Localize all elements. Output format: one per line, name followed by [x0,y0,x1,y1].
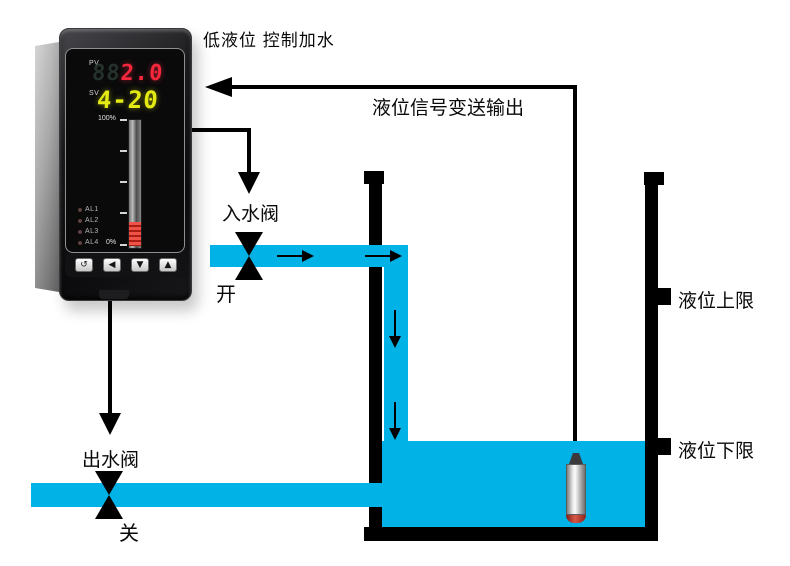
bargraph-scale-bottom: 0% [106,239,116,246]
flow-arrow-down-icon [389,428,401,440]
bargraph-level-fill [129,222,141,246]
inlet-control-line-horizontal [184,128,251,132]
lower-limit-label: 液位下限 [678,436,754,463]
sensor-cable-gland [569,453,583,464]
alarm-label: AL4 [85,239,99,246]
sensor-body [566,464,586,515]
level-control-diagram: 低液位 控制加水 液位信号变送输出 入水阀 开 出水阀 关 液位上限 液位下限 [0,0,790,566]
flow-arrow-right-icon [302,250,314,262]
bargraph-track [128,119,142,249]
bargraph-tick [120,212,127,214]
pv-ghost-digits: 88 [91,62,121,86]
tank-wall-right [645,172,658,540]
outlet-valve-icon [95,471,123,495]
alarm-label: AL1 [85,206,99,213]
bargraph-tick [120,244,127,246]
upper-limit-label: 液位上限 [678,286,754,313]
outlet-pipe [31,483,382,507]
alarm-led [78,219,82,223]
inlet-valve-icon [235,256,263,280]
diagram-title: 低液位 控制加水 [203,26,335,51]
inlet-valve-icon [235,232,263,256]
alarm-led [78,230,82,234]
flow-arrow-right-icon [390,250,402,262]
signal-line-horizontal [228,85,577,89]
alarm-row: AL3 [78,227,99,236]
outlet-control-arrowhead-icon [99,413,121,435]
shift-key-button[interactable]: ◀ [103,258,121,272]
flow-arrow-right-icon [365,255,391,257]
controller-keypad: ↺ ◀ ▼ ▲ [65,253,187,277]
alarm-row: AL2 [78,216,99,225]
tank-water [382,441,645,527]
tank-wall-right-cap [644,172,664,185]
outlet-valve-label: 出水阀 [82,445,139,472]
controller-display: PV 882.0 SV 4-20 100% 0% AL1 [65,48,185,253]
loop-set-key-button[interactable]: ↺ [75,258,93,272]
inlet-valve-state: 开 [216,278,236,307]
flow-arrow-down-icon [394,310,396,338]
signal-output-label: 液位信号变送输出 [372,93,524,120]
level-controller: PV 882.0 SV 4-20 100% 0% AL1 [35,28,190,299]
alarm-row: AL1 [78,205,99,214]
bargraph-tick [120,119,127,121]
inlet-valve-label: 入水阀 [222,199,279,226]
flow-arrow-right-icon [277,255,303,257]
signal-line-vertical [573,85,577,457]
inlet-control-line-vertical [247,128,251,174]
bargraph-scale-top: 100% [98,115,116,122]
inlet-control-arrowhead-icon [238,172,260,194]
alarm-led [78,208,82,212]
alarm-label: AL3 [85,228,99,235]
outlet-control-line-vertical [108,296,112,414]
controller-bottom-tab [99,290,129,299]
flow-arrow-down-icon [389,336,401,348]
flow-arrow-down-icon [394,402,396,430]
down-key-button[interactable]: ▼ [131,258,149,272]
sv-value: 4-20 [96,87,160,113]
bargraph-tick [120,150,127,152]
sensor-tip [566,515,586,523]
bargraph-tick [120,181,127,183]
alarm-led [78,241,82,245]
up-key-button[interactable]: ▲ [159,258,177,272]
lower-limit-marker [657,438,671,455]
outlet-valve-icon [95,495,123,519]
upper-limit-marker [657,288,671,305]
alarm-label: AL2 [85,217,99,224]
pv-value: 2.0 [120,62,164,86]
tank-bottom [364,527,658,541]
level-sensor [565,453,587,523]
tank-wall-left-cap [364,171,384,184]
alarm-indicators: AL1 AL2 AL3 AL4 [78,205,99,247]
pv-readout: 882.0 [91,62,164,86]
alarm-row: AL4 [78,238,99,247]
outlet-valve-state: 关 [119,517,139,546]
